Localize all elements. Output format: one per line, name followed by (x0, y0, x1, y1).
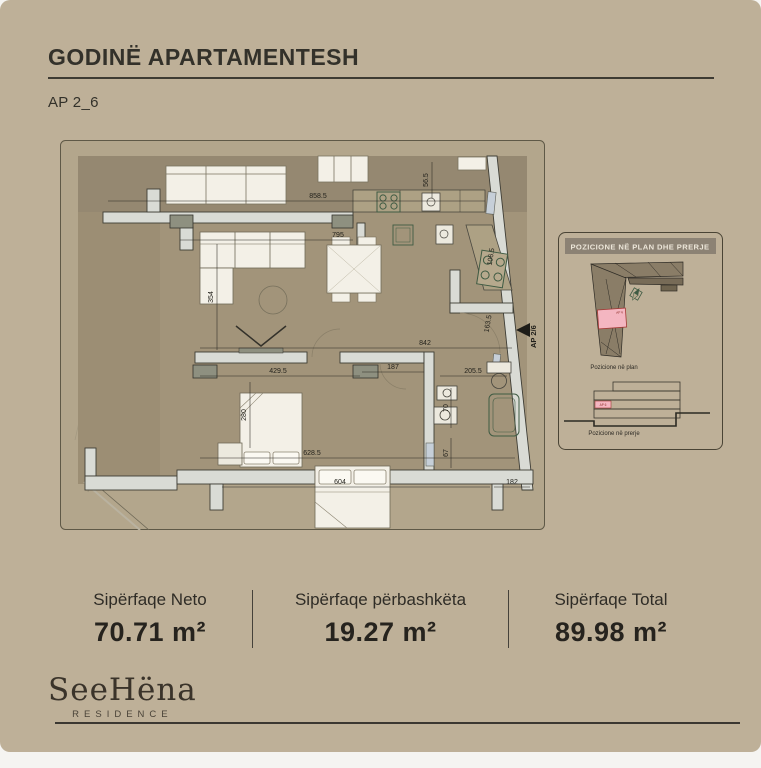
entrance-label: AP 2/6 (529, 325, 538, 348)
dim-label: 182 (506, 479, 518, 486)
position-inset: POZICIONE NË PLAN DHE PRERJE AP 6 Pozi (558, 232, 723, 450)
dim-label: 604 (334, 479, 346, 486)
dim-label: 56.5 (423, 173, 430, 187)
stat-net-area: Sipërfaqe Neto 70.71 m² (48, 590, 252, 648)
dim-label: 795 (332, 232, 344, 239)
dim-label: 628.5 (303, 450, 321, 457)
dim-label: 842 (419, 340, 431, 347)
floor-plan-drawing: 858.5 56.5 795 354 106.5 163.5 842 429.5… (60, 140, 545, 530)
dim-label: 205.5 (464, 368, 482, 375)
dim-label: 187 (387, 364, 399, 371)
brand-logo: SeeHëna RESIDENCE (48, 672, 197, 720)
unit-highlight: AP 6 (597, 308, 626, 329)
dim-label: 429.5 (269, 368, 287, 375)
sink-icon (437, 386, 457, 400)
area-stats: Sipërfaqe Neto 70.71 m² Sipërfaqe përbas… (48, 590, 713, 648)
dim-label: 858.5 (309, 193, 327, 200)
dim-label: 67 (443, 449, 450, 457)
dim-label: 280 (241, 409, 248, 421)
stat-value: 70.71 m² (48, 617, 252, 648)
stat-value: 89.98 m² (509, 617, 713, 648)
stat-value: 19.27 m² (253, 617, 508, 648)
lower-bed-icon (315, 466, 390, 528)
stat-total-area: Sipërfaqe Total 89.98 m² (509, 590, 713, 648)
page-title: GODINË APARTAMENTESH (48, 44, 359, 71)
dim-label: 354 (208, 291, 215, 303)
position-inset-drawing: POZICIONE NË PLAN DHE PRERJE AP 6 Pozi (558, 232, 723, 450)
stat-common-area: Sipërfaqe përbashkëta 19.27 m² (253, 590, 508, 648)
apartment-id: AP 2_6 (48, 94, 99, 111)
plan-sheet: GODINË APARTAMENTESH AP 2_6 (0, 0, 761, 752)
dining-table-icon (327, 237, 381, 302)
inset-title: POZICIONE NË PLAN DHE PRERJE (570, 243, 709, 252)
bed-icon (240, 393, 302, 467)
stat-label: Sipërfaqe Neto (48, 590, 252, 610)
floor-plan: 858.5 56.5 795 354 106.5 163.5 842 429.5… (60, 140, 545, 530)
stat-label: Sipërfaqe Total (509, 590, 713, 610)
footer-divider (55, 722, 740, 724)
dim-label: 70 (443, 404, 450, 412)
unit-label: AP 6 (616, 310, 623, 314)
inset-plan-caption: Pozicione në plan (590, 365, 637, 371)
title-divider (48, 77, 714, 79)
toilet-icon (487, 362, 511, 373)
unit-label-section: AP 6 (600, 403, 607, 407)
brand-name: SeeHëna (48, 672, 197, 708)
inset-section-caption: Pozicione në prerje (588, 431, 640, 437)
brand-subtitle: RESIDENCE (48, 709, 197, 720)
stat-label: Sipërfaqe përbashkëta (253, 590, 508, 610)
